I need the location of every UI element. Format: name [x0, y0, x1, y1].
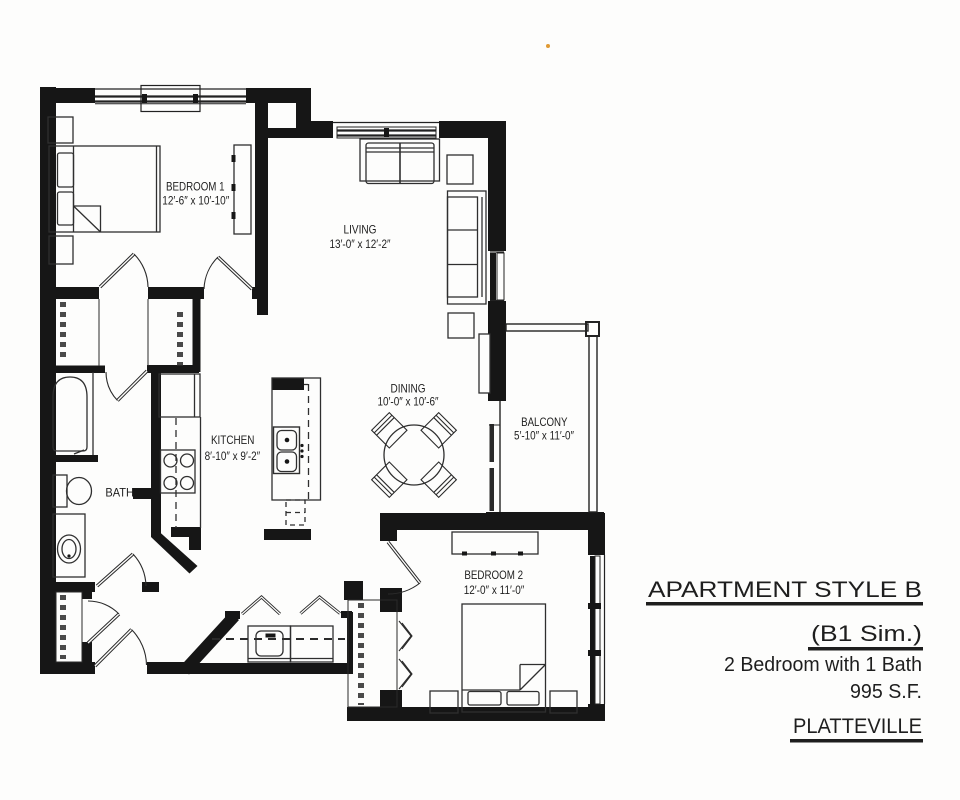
svg-text:BALCONY: BALCONY	[521, 415, 567, 429]
svg-text:BATH: BATH	[105, 485, 134, 499]
svg-text:(B1 Sim.): (B1 Sim.)	[811, 621, 922, 646]
svg-text:APARTMENT STYLE B: APARTMENT STYLE B	[648, 577, 922, 602]
svg-text:10′-0″ x 10′-6″: 10′-0″ x 10′-6″	[378, 397, 439, 409]
svg-text:DINING: DINING	[391, 381, 426, 395]
svg-text:BEDROOM 2: BEDROOM 2	[464, 568, 523, 582]
svg-text:2 Bedroom with 1 Bath: 2 Bedroom with 1 Bath	[724, 654, 922, 676]
svg-text:13′-0″ x 12′-2″: 13′-0″ x 12′-2″	[330, 239, 391, 251]
svg-text:12′-0″ x 11′-0″: 12′-0″ x 11′-0″	[464, 585, 525, 597]
svg-text:KITCHEN: KITCHEN	[211, 433, 255, 447]
svg-text:5′-10″ x 11′-0″: 5′-10″ x 11′-0″	[514, 431, 574, 443]
svg-text:LIVING: LIVING	[344, 222, 377, 236]
svg-text:BEDROOM 1: BEDROOM 1	[166, 180, 225, 194]
svg-text:PLATTEVILLE: PLATTEVILLE	[793, 715, 922, 738]
svg-text:8′-10″ x 9′-2″: 8′-10″ x 9′-2″	[205, 451, 261, 463]
svg-text:995 S.F.: 995 S.F.	[850, 681, 922, 703]
svg-text:12′-6″ x 10′-10″: 12′-6″ x 10′-10″	[162, 196, 229, 208]
